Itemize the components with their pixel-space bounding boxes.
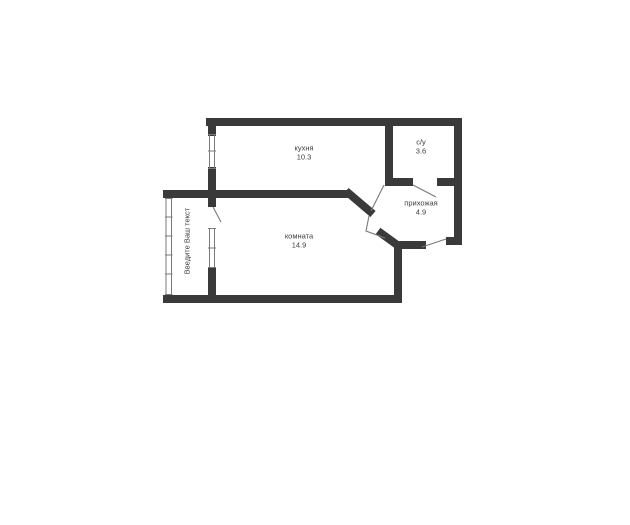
room-label-living-room: комната 14.9 [285,232,313,249]
room-label-kitchen: кухня 10.3 [294,144,313,161]
wall-diagonal-lower [378,231,400,247]
room-area: 3.6 [416,147,426,156]
watermark-text: Введите Ваш текст [183,208,192,274]
room-area: 4.9 [404,208,437,217]
floor-plan-drawing [0,0,630,525]
room-area: 10.3 [294,153,313,162]
balcony-door-swing [213,207,221,222]
kitchen-window [208,134,216,169]
balcony-left-window [165,198,173,295]
bathroom-door-swing [413,185,436,197]
room-hallway-door-swing [371,185,384,211]
balcony-room-window [208,228,216,268]
room-area: 14.9 [285,241,313,250]
room-label-bathroom: с/у 3.6 [416,138,426,155]
floor-plan: кухня 10.3 с/у 3.6 прихожая 4.9 комната … [0,0,630,525]
wall-diagonal-upper [346,191,373,214]
room-label-hallway: прихожая 4.9 [404,199,437,216]
